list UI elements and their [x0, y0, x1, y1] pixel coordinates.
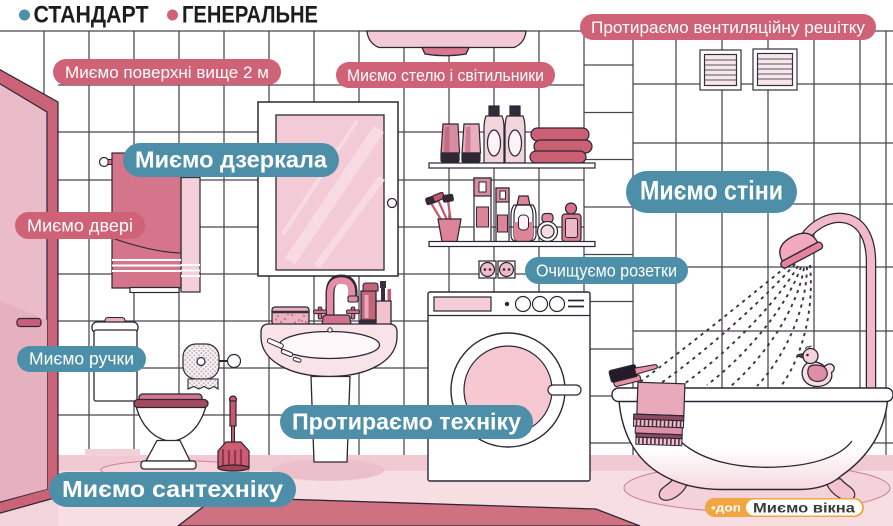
svg-text:Миємо стелю і світильники: Миємо стелю і світильники	[347, 66, 544, 85]
svg-text:Миємо сантехніку: Миємо сантехніку	[62, 476, 283, 502]
svg-text:Миємо стіни: Миємо стіни	[640, 176, 783, 206]
svg-text:Миємо двері: Миємо двері	[27, 216, 133, 236]
svg-text:Миємо вікна: Миємо вікна	[753, 501, 856, 516]
svg-text:Миємо поверхні вище 2 м: Миємо поверхні вище 2 м	[65, 63, 269, 82]
svg-text:Протираємо вентиляційну решітк: Протираємо вентиляційну решітку	[591, 18, 866, 37]
svg-text:Очищуємо розетки: Очищуємо розетки	[536, 261, 677, 281]
svg-text:Протираємо техніку: Протираємо техніку	[292, 409, 521, 435]
svg-text:•доп: •доп	[711, 503, 741, 515]
svg-text:Миємо ручки: Миємо ручки	[29, 349, 134, 369]
svg-text:ГЕНЕРАЛЬНЕ: ГЕНЕРАЛЬНЕ	[182, 2, 318, 29]
svg-text:СТАНДАРТ: СТАНДАРТ	[34, 2, 149, 29]
svg-text:Миємо дзеркала: Миємо дзеркала	[135, 147, 327, 173]
